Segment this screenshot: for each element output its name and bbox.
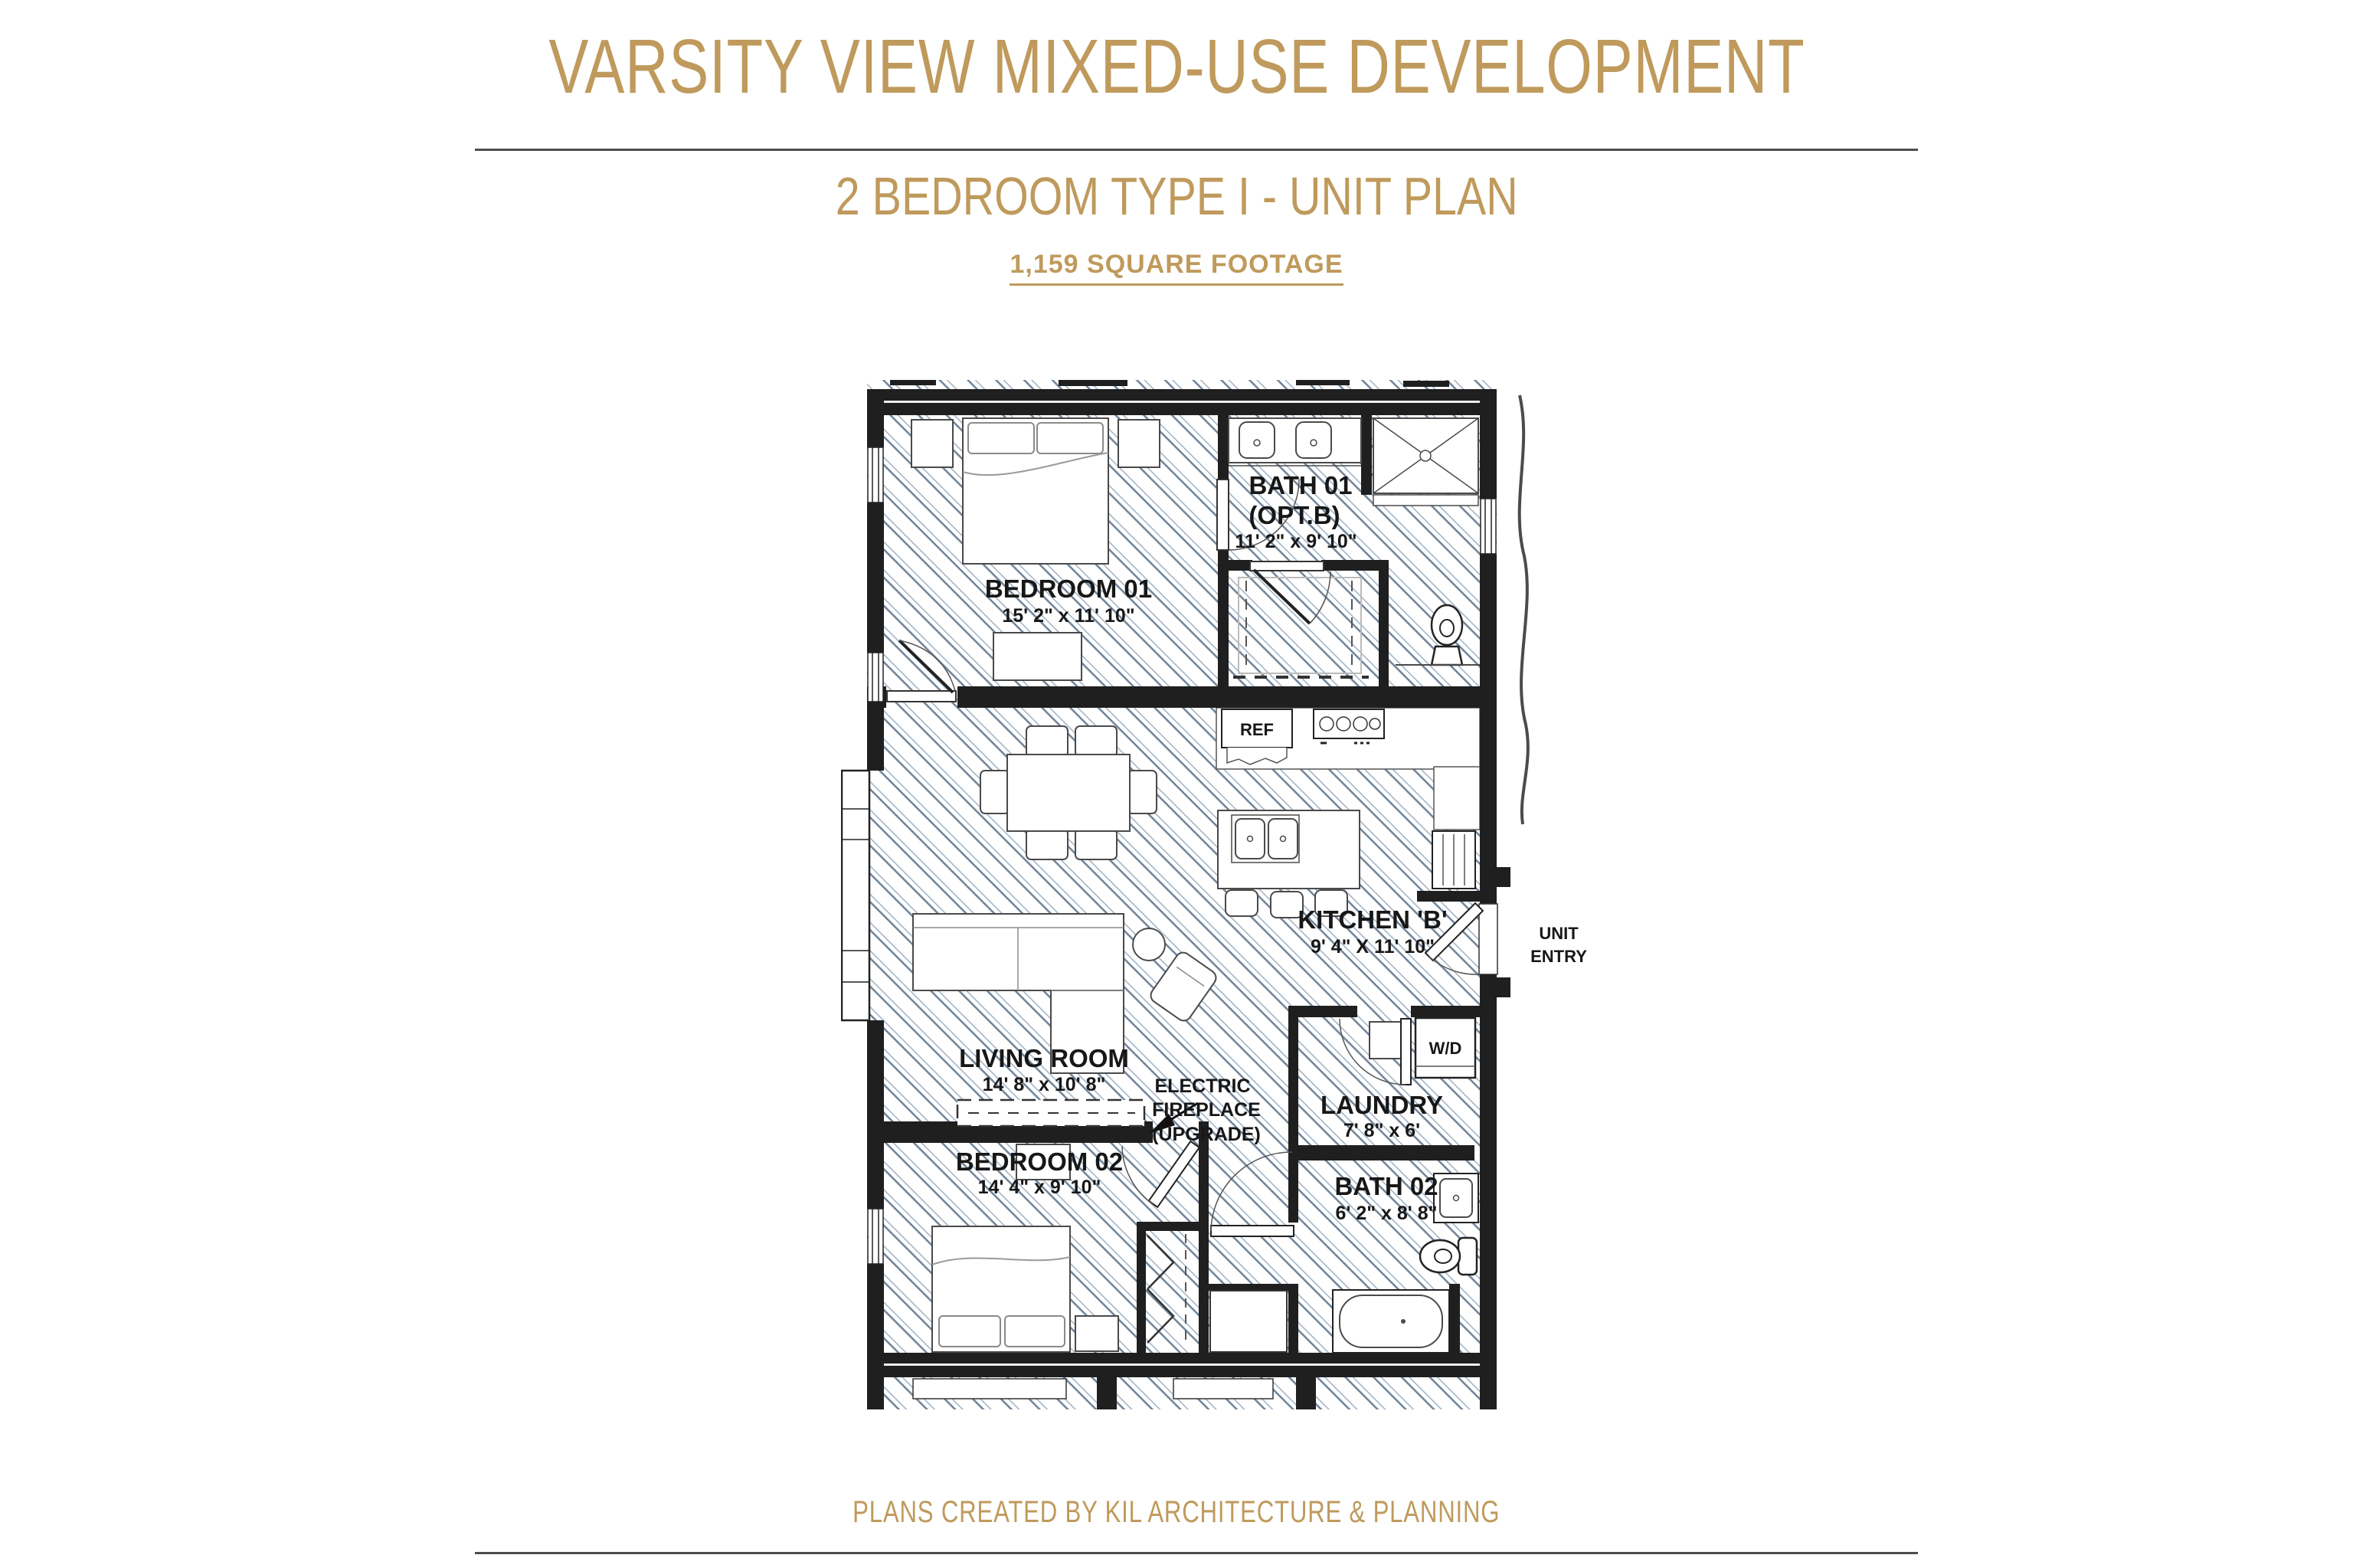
square-footage: 1,159 SQUARE FOOTAGE	[0, 250, 2353, 286]
bedroom02-bed	[932, 1226, 1070, 1352]
bath02-toilet	[1420, 1238, 1477, 1275]
floor-plan-drawing: BEDROOM 01 15' 2" x 11' 10" BATH 01 (OPT…	[841, 380, 1602, 1413]
window-below-2	[1173, 1379, 1273, 1399]
fireplace-note-line3: (UPGRADE)	[1152, 1124, 1261, 1145]
square-footage-text: 1,159 SQUARE FOOTAGE	[1010, 250, 1343, 286]
kitchen-label: KITCHEN 'B'	[1298, 905, 1447, 934]
laundry-dims: 7' 8" x 6'	[1343, 1120, 1420, 1141]
fireplace-note-line2: FIREPLACE	[1152, 1099, 1261, 1121]
bath02-label: BATH 02	[1334, 1172, 1438, 1200]
plan-subtitle-text: 2 BEDROOM TYPE I - UNIT PLAN	[836, 165, 1518, 227]
dining-chair	[980, 771, 1010, 813]
window-left-1	[868, 447, 883, 502]
bath01-label2: (OPT.B)	[1248, 501, 1340, 529]
unit-entry-label-line1: UNIT	[1539, 924, 1579, 943]
window-right-1	[1481, 499, 1496, 554]
window-below-1	[913, 1379, 1066, 1399]
bedroom01-dims: 15' 2" x 11' 10"	[1002, 605, 1134, 627]
dining-chair	[1026, 726, 1068, 757]
living-dims: 14' 8" x 10' 8"	[983, 1074, 1106, 1095]
bedroom01-bed	[963, 418, 1108, 564]
footer-credit: PLANS CREATED BY KIL ARCHITECTURE & PLAN…	[0, 1495, 2353, 1530]
bedroom01-label: BEDROOM 01	[985, 574, 1152, 603]
bath01-dims: 11' 2" x 9' 10"	[1235, 531, 1356, 552]
dining-table	[1007, 755, 1130, 831]
ref-label: REF	[1240, 720, 1274, 739]
page-title-text: VARSITY VIEW MIXED-USE DEVELOPMENT	[548, 23, 1805, 111]
kitchen-island	[1218, 810, 1360, 918]
page-title: VARSITY VIEW MIXED-USE DEVELOPMENT	[0, 23, 2353, 111]
unit-entry-label-line2: ENTRY	[1530, 947, 1587, 966]
bath01-shower	[1373, 418, 1478, 506]
floor-plan-sheet: VARSITY VIEW MIXED-USE DEVELOPMENT 2 BED…	[0, 0, 2353, 1568]
bath02-vanity	[1434, 1174, 1478, 1223]
living-label: LIVING ROOM	[959, 1044, 1129, 1072]
bedroom02-label: BEDROOM 02	[956, 1147, 1123, 1176]
dining-chair	[1075, 829, 1117, 859]
floor-plan: BEDROOM 01 15' 2" x 11' 10" BATH 01 (OPT…	[841, 380, 1602, 1413]
window-left-2	[868, 653, 883, 702]
entry-cabinet	[1432, 831, 1475, 889]
bath01-vanity	[1229, 418, 1361, 466]
dining-chair	[1026, 829, 1068, 859]
cooktop	[1314, 709, 1384, 743]
dining-chair	[1075, 726, 1117, 757]
bottom-divider	[475, 1552, 1918, 1554]
fireplace-note-line1: ELECTRIC	[1155, 1075, 1251, 1097]
bedroom02-bench	[1075, 1316, 1118, 1351]
laundry-label: LAUNDRY	[1320, 1091, 1443, 1119]
wd-label: W/D	[1429, 1039, 1462, 1058]
site-sketch-line	[1520, 395, 1528, 824]
bedroom01-nightstand-left	[911, 420, 953, 467]
window-left-3	[868, 1209, 883, 1264]
bedroom01-nightstand-right	[1118, 420, 1160, 467]
side-table	[1133, 928, 1165, 961]
bath02-tub	[1333, 1290, 1449, 1353]
bedroom02-dims: 14' 4" x 9' 10"	[978, 1177, 1101, 1198]
plan-subtitle: 2 BEDROOM TYPE I - UNIT PLAN	[0, 165, 2353, 227]
bay-window	[842, 771, 869, 1020]
bedroom01-dresser	[993, 633, 1082, 680]
top-divider	[475, 149, 1918, 151]
kitchen-dims: 9' 4" X 11' 10"	[1311, 936, 1435, 957]
bath02-dims: 6' 2" x 8' 8"	[1336, 1203, 1438, 1224]
bath01-label: BATH 01	[1248, 471, 1352, 499]
island-stool	[1226, 890, 1258, 916]
footer-credit-text: PLANS CREATED BY KIL ARCHITECTURE & PLAN…	[853, 1495, 1500, 1530]
dining-chair	[1127, 771, 1157, 813]
hall-closet	[1210, 1291, 1287, 1352]
